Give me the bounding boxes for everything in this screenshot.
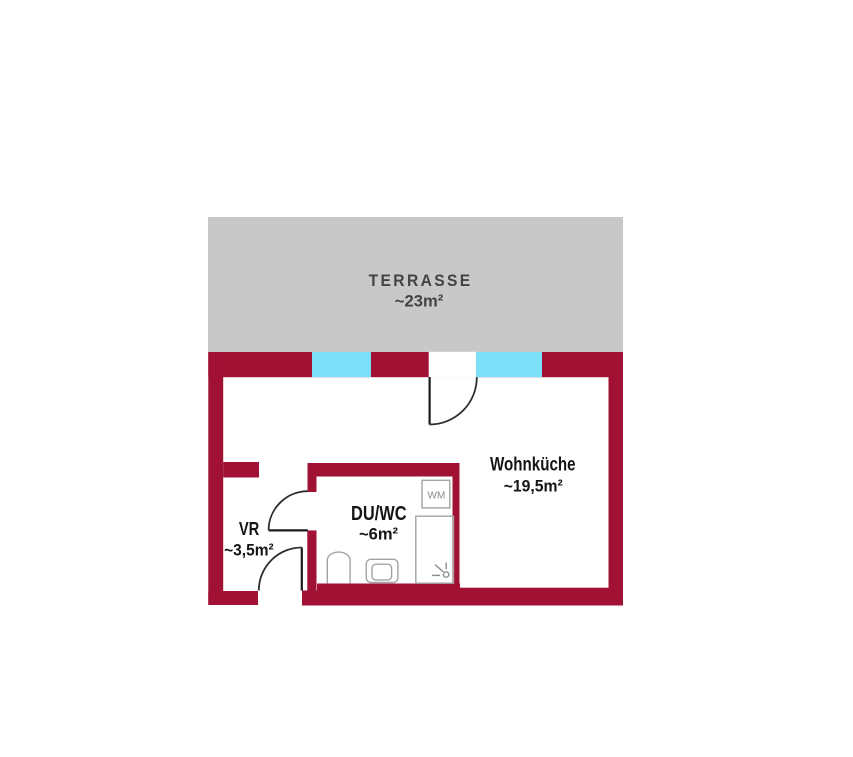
- svg-text:VR: VR: [239, 519, 260, 539]
- svg-text:WM: WM: [428, 489, 446, 501]
- svg-text:~19,5m²: ~19,5m²: [504, 476, 563, 495]
- svg-text:~6m²: ~6m²: [359, 525, 398, 543]
- svg-text:~3,5m²: ~3,5m²: [224, 540, 274, 559]
- svg-text:TERRASSE: TERRASSE: [369, 271, 473, 290]
- svg-text:Wohnküche: Wohnküche: [490, 455, 576, 476]
- svg-text:DU/WC: DU/WC: [351, 503, 407, 525]
- svg-text:~23m²: ~23m²: [395, 292, 444, 310]
